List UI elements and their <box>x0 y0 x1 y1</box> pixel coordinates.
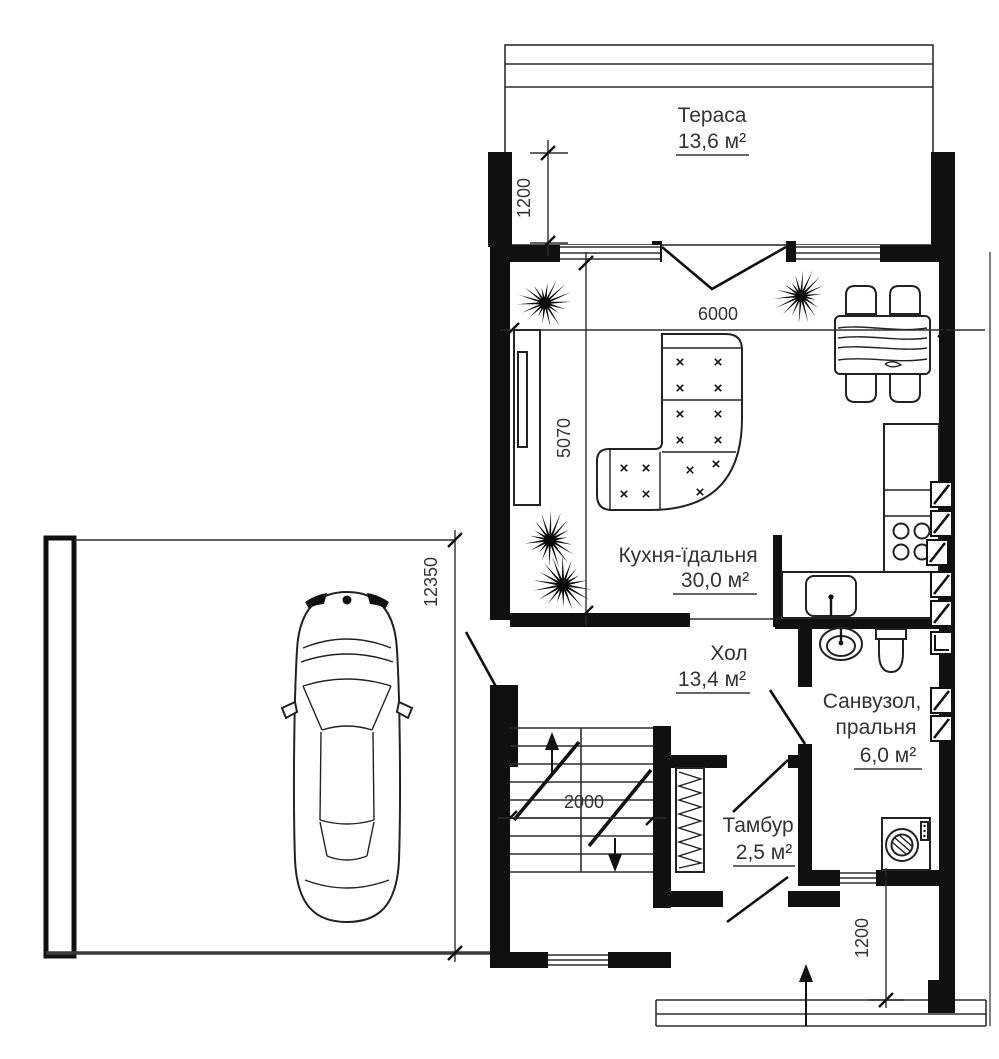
entry-arrow <box>799 964 813 1026</box>
toilet <box>876 629 906 672</box>
dim-terrace-depth: 1200 <box>514 140 568 256</box>
room-name: Кухня-їдальня <box>618 544 757 567</box>
window-bathroom-south <box>840 873 876 883</box>
kitchen-counter <box>782 424 939 618</box>
plant <box>774 271 824 324</box>
dim-label: 1200 <box>852 918 872 958</box>
label-kitchen: Кухня-їдальня 30,0 м² <box>618 544 757 594</box>
floor-plan-canvas: 1200 6000 5070 12350 2000 <box>0 0 999 1059</box>
room-area: 13,6 м² <box>678 130 746 153</box>
wall-terrace-left <box>488 152 512 247</box>
wall-terrace-right <box>931 152 955 247</box>
wall-bathroom-west-a <box>798 629 812 687</box>
room-area: 2,5 м² <box>736 841 792 864</box>
dim-label: 2000 <box>564 792 604 812</box>
wall-south-b <box>608 952 671 968</box>
label-tambur: Тамбур 2,5 м² <box>722 814 795 866</box>
dim-label: 5070 <box>554 418 574 458</box>
car <box>282 592 412 922</box>
wall-south-a <box>490 952 548 968</box>
chair <box>846 374 876 402</box>
room-name: Тамбур <box>722 814 793 837</box>
wall-tambur-south-a <box>665 891 723 907</box>
washbasin <box>820 628 862 660</box>
dim-entry-depth: 1200 <box>852 868 904 1008</box>
carport-column <box>46 538 74 956</box>
window-stair-south <box>548 955 608 965</box>
vent-shafts <box>927 482 952 741</box>
bathroom-door-swing <box>770 690 805 744</box>
wall-tambur-south-b <box>788 891 840 907</box>
wall-bathroom-south-a <box>798 870 840 886</box>
wall-west-pier <box>490 685 518 767</box>
carport-door-swing <box>466 632 500 694</box>
window-kitchen-north-left <box>560 245 660 262</box>
dim-label: 12350 <box>421 557 441 607</box>
coat-closet <box>676 768 704 872</box>
wall-porch-corner <box>928 980 955 1013</box>
plant <box>525 510 574 568</box>
tambur-door-swing <box>733 760 788 812</box>
label-bathroom: Санвузол, пральня 6,0 м² <box>823 690 922 769</box>
terrace-door-swing <box>662 247 786 289</box>
window-kitchen-north-right <box>796 245 880 262</box>
dim-label: 6000 <box>698 304 738 324</box>
label-hall: Хол 13,4 м² <box>676 642 750 693</box>
room-area: 13,4 м² <box>678 668 746 691</box>
dining-table <box>835 316 930 374</box>
floor-plan-drawing: 1200 6000 5070 12350 2000 <box>0 0 999 1059</box>
room-name: Тераса <box>678 104 747 127</box>
washing-machine <box>882 818 930 870</box>
stair-arrow-down <box>608 838 622 872</box>
room-area: 30,0 м² <box>681 569 749 592</box>
plant <box>517 281 570 328</box>
wall-west-kitchen <box>490 245 510 620</box>
dim-label: 1200 <box>514 178 534 218</box>
chair <box>890 286 920 314</box>
kitchen-sink <box>806 576 856 616</box>
sofa <box>597 334 742 510</box>
wall-bathroom-south-b <box>876 870 955 886</box>
room-name-line2: пральня <box>836 716 917 739</box>
chair <box>846 286 876 314</box>
dining-set <box>835 286 930 402</box>
wall-kitchen-hall <box>510 613 690 627</box>
dim-side-length: 12350 <box>421 530 462 962</box>
room-area: 6,0 м² <box>860 744 916 767</box>
room-name: Хол <box>710 642 747 665</box>
plant <box>533 555 592 610</box>
chair <box>890 374 920 402</box>
tv-cabinet <box>514 330 540 505</box>
wall-stairwell <box>653 726 671 908</box>
entry-door-swing <box>727 877 788 922</box>
room-name: Санвузол, <box>823 690 922 713</box>
wall-tambur-north <box>653 755 727 768</box>
label-terrace: Тераса 13,6 м² <box>676 104 749 155</box>
